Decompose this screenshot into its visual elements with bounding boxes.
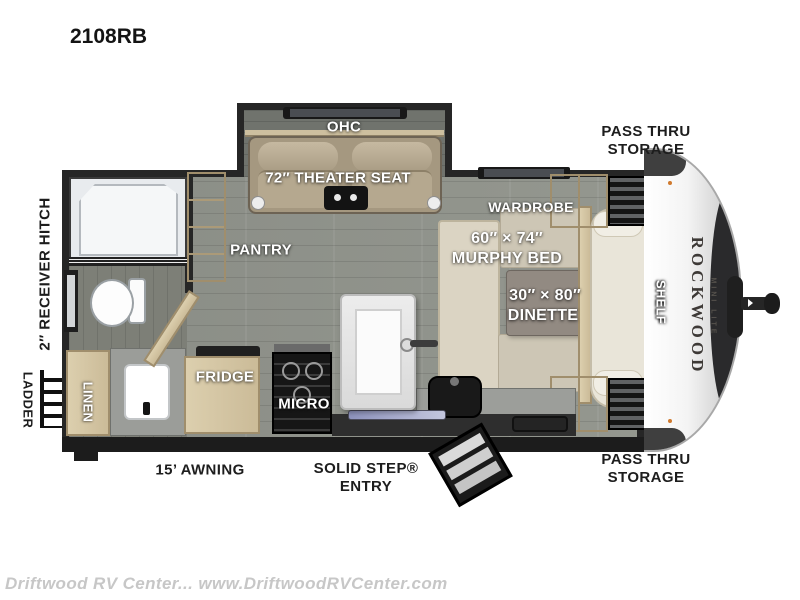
wardrobe-top-label: WARDROBE bbox=[488, 199, 574, 215]
brand-logo: ROCKWOOD bbox=[687, 237, 707, 376]
cap-screw-top bbox=[668, 181, 672, 185]
linen-label: LINEN bbox=[81, 382, 96, 423]
entry-label-line2: ENTRY bbox=[314, 478, 419, 496]
pass-thru-bottom-label: PASS THRU STORAGE bbox=[601, 451, 690, 487]
sink-faucet bbox=[450, 377, 459, 386]
awning-rail bbox=[62, 437, 644, 452]
brand-sub-logo: MINI LITE bbox=[710, 278, 717, 337]
ohc-label: OHC bbox=[327, 119, 361, 136]
sink-tray bbox=[512, 416, 568, 432]
shower-door bbox=[69, 257, 187, 266]
entry-door bbox=[340, 294, 416, 410]
pass-thru-top-label: PASS THRU STORAGE bbox=[601, 123, 690, 159]
cap-screw-bottom bbox=[668, 419, 672, 423]
mirror-glass bbox=[67, 275, 75, 327]
receiver-hitch-label: 2″ RECEIVER HITCH bbox=[37, 197, 54, 350]
dinette-label: DINETTE bbox=[508, 307, 579, 325]
floorplan-image: 2108RB 2″ RECEIVER HITCH LADDER LINEN PA… bbox=[0, 0, 800, 600]
theater-seat-label: 72″ THEATER SEAT bbox=[265, 170, 411, 187]
hitch-coupler bbox=[764, 293, 780, 314]
burner-left bbox=[282, 362, 300, 380]
pass-thru-bottom-line1: PASS THRU bbox=[601, 451, 690, 469]
cupholder-left bbox=[334, 194, 341, 201]
pass-thru-top-line1: PASS THRU bbox=[601, 123, 690, 141]
toilet-bowl bbox=[90, 279, 134, 327]
armrest-left bbox=[251, 196, 265, 210]
pantry-label: PANTRY bbox=[230, 242, 292, 259]
dinette-size-label: 30″ × 80″ bbox=[509, 287, 581, 305]
entry-label: SOLID STEP® ENTRY bbox=[314, 460, 419, 496]
awning-label: 15’ AWNING bbox=[155, 462, 244, 479]
pass-thru-bottom-line2: STORAGE bbox=[601, 469, 690, 487]
entry-label-line1: SOLID STEP® bbox=[314, 460, 419, 478]
ladder-label: LADDER bbox=[21, 372, 36, 429]
burner-right bbox=[305, 362, 323, 380]
cupholder-right bbox=[350, 194, 357, 201]
cooktop bbox=[272, 352, 332, 434]
slide-window-glass bbox=[290, 109, 400, 117]
pass-thru-top-line2: STORAGE bbox=[601, 141, 690, 159]
shower-pan bbox=[79, 184, 178, 256]
pantry-cabinet bbox=[187, 172, 226, 282]
theater-backrest-left bbox=[258, 142, 338, 172]
murphy-bed-label: MURPHY BED bbox=[452, 250, 562, 268]
vanity-faucet bbox=[143, 402, 150, 415]
model-number: 2108RB bbox=[70, 25, 147, 49]
armrest-right bbox=[427, 196, 441, 210]
micro-label: MICRO bbox=[278, 396, 330, 413]
dealer-watermark: Driftwood RV Center... www.DriftwoodRVCe… bbox=[5, 574, 448, 594]
tv bbox=[348, 410, 446, 420]
fridge-label: FRIDGE bbox=[196, 369, 254, 386]
theater-backrest-right bbox=[352, 142, 432, 172]
rear-step-bumper bbox=[74, 450, 98, 461]
theater-console bbox=[324, 186, 368, 210]
shelf-label: SHELF bbox=[654, 280, 669, 324]
door-window bbox=[355, 309, 402, 395]
cap-trim-bottom bbox=[644, 428, 686, 452]
door-handle-lever bbox=[410, 340, 438, 347]
murphy-bed-size-label: 60″ × 74″ bbox=[471, 230, 543, 248]
hitch-marker bbox=[748, 299, 753, 307]
